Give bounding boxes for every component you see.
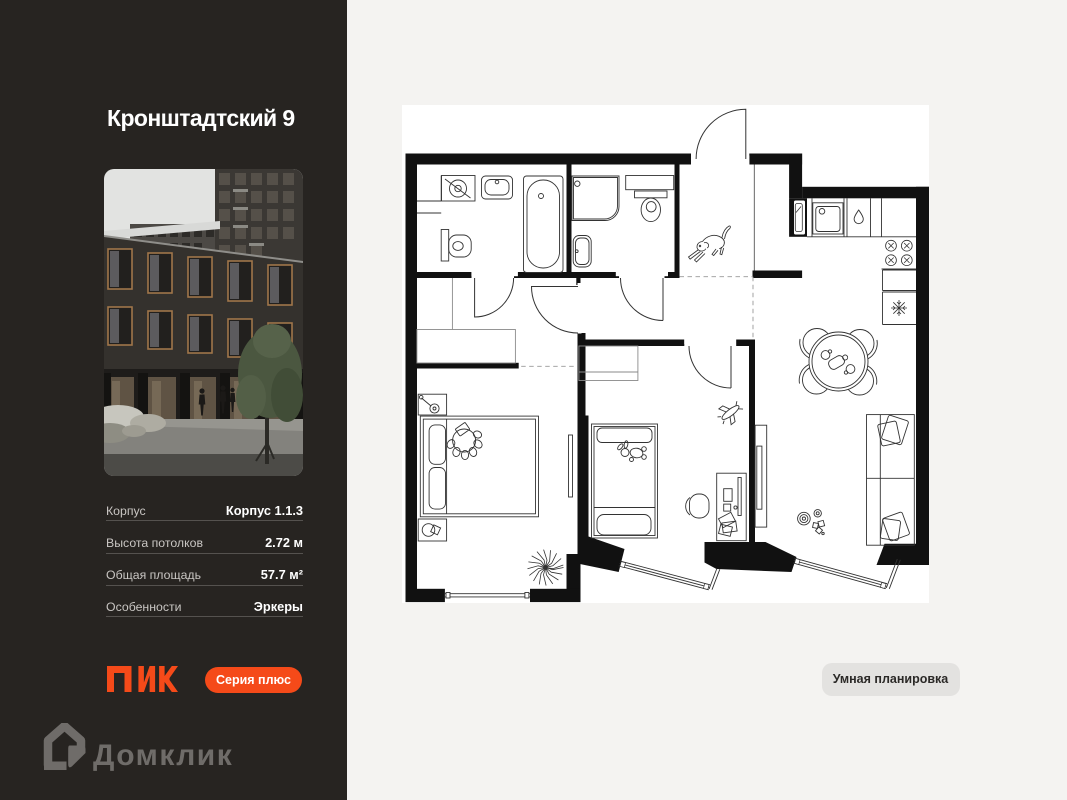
svg-text:Домклик: Домклик	[93, 739, 233, 772]
